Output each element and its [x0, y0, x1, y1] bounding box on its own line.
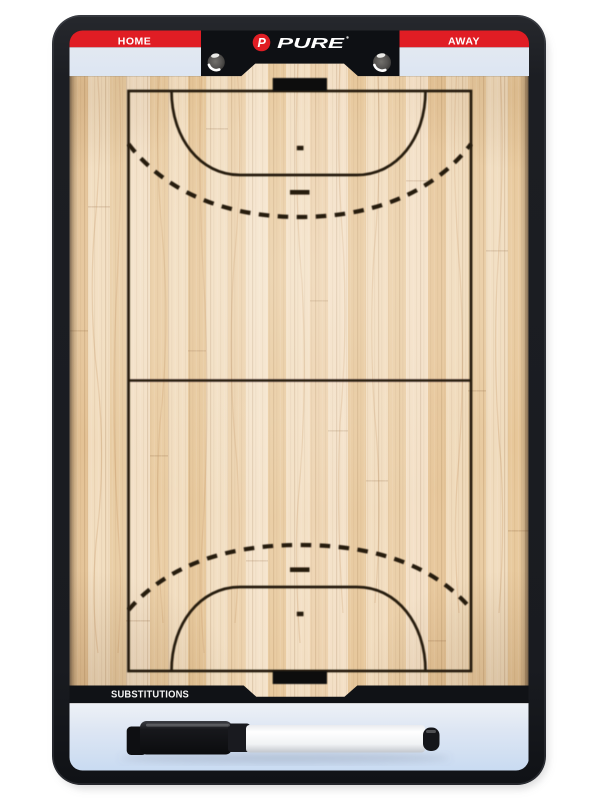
- svg-text:SUBSTITUTIONS: SUBSTITUTIONS: [111, 690, 189, 701]
- svg-text:PURE: PURE: [277, 35, 346, 52]
- svg-text:AWAY: AWAY: [448, 35, 480, 47]
- svg-text:P: P: [258, 36, 267, 50]
- svg-text:HOME: HOME: [118, 35, 152, 47]
